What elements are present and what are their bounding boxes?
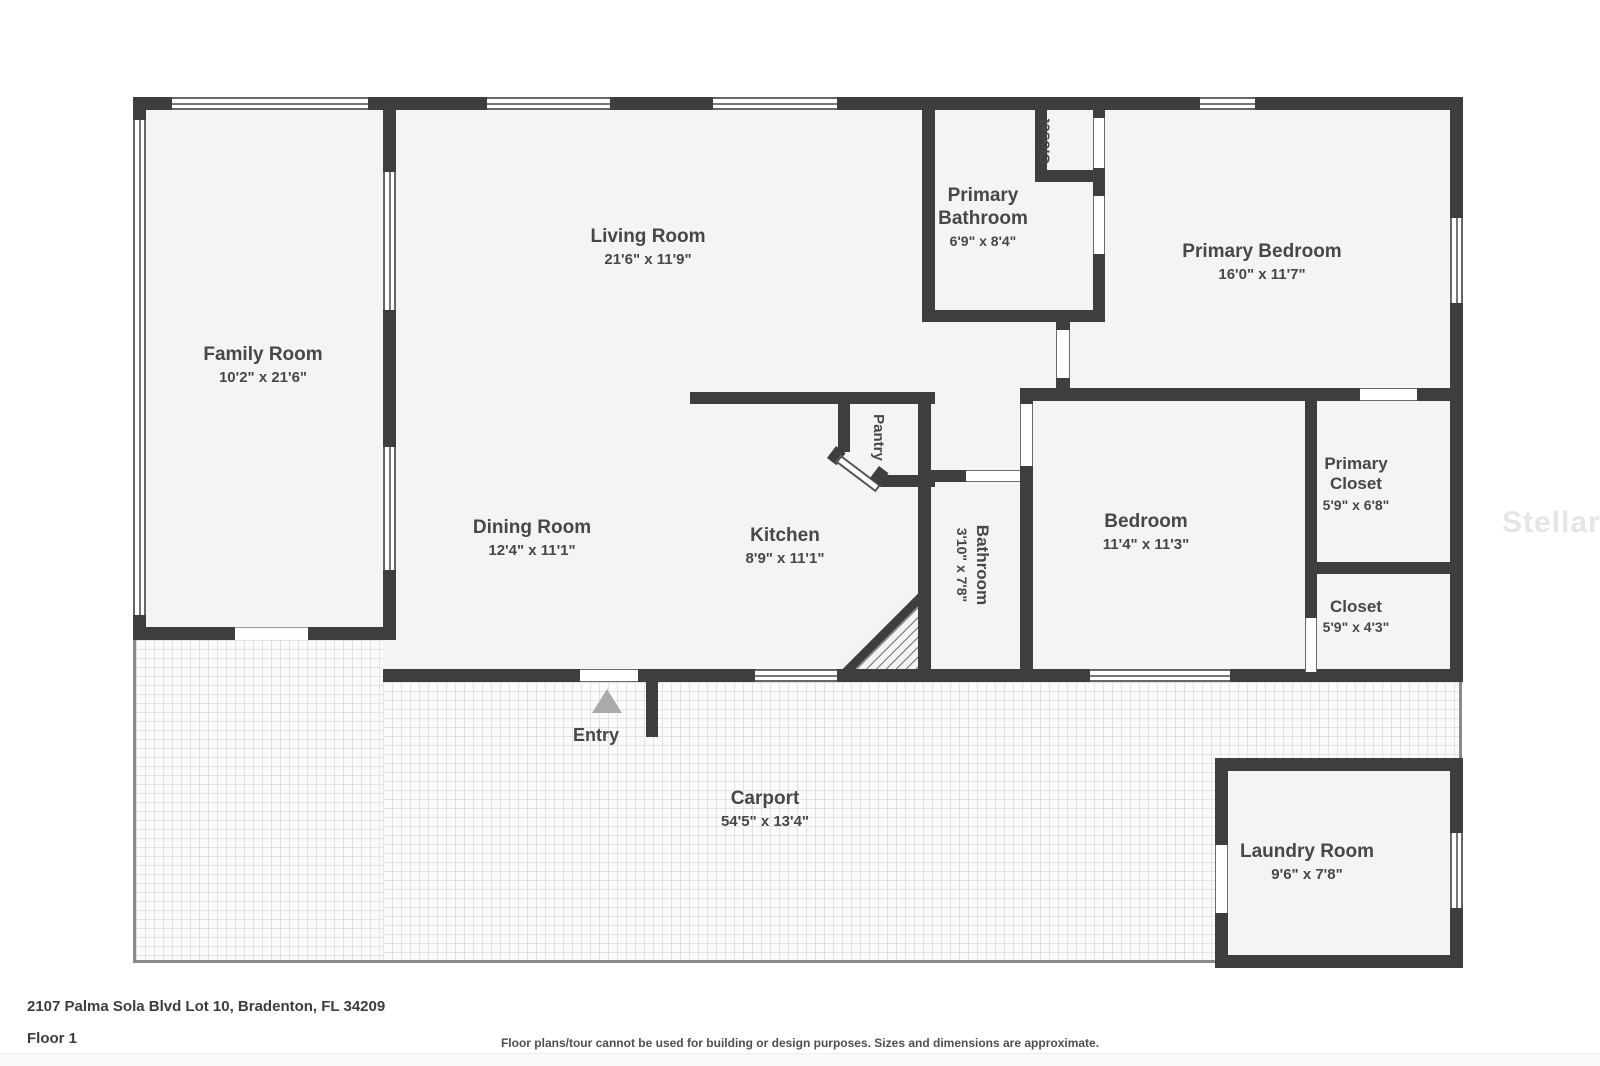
room-dims: 54'5" x 13'4"	[645, 813, 885, 832]
wall	[1215, 758, 1463, 771]
window	[1090, 669, 1230, 682]
wall	[690, 392, 935, 404]
room-label-closet-top: Closet	[1014, 112, 1076, 170]
room-dims: 6'9" x 8'4"	[923, 233, 1043, 251]
wall	[928, 470, 968, 482]
window	[383, 447, 396, 570]
room-name: Carport	[645, 788, 885, 811]
room-dims: 12'4" x 11'1"	[432, 542, 632, 561]
room-name: Family Room	[163, 344, 363, 367]
room-dims: 11'4" x 11'3"	[1046, 536, 1246, 555]
room-label-living-room: Living Room 21'6" x 11'9"	[548, 226, 748, 270]
room-name: Laundry Room	[1207, 841, 1407, 864]
door-opening	[1093, 196, 1105, 254]
room-name: Closet	[1296, 597, 1416, 617]
room-name: Pantry	[870, 414, 887, 461]
room-label-pantry: Pantry	[848, 406, 908, 468]
door-opening	[966, 470, 1020, 482]
footer-address: 2107 Palma Sola Blvd Lot 10, Bradenton, …	[27, 998, 385, 1015]
window	[755, 669, 837, 682]
room-dims: 10'2" x 21'6"	[163, 369, 363, 388]
floor-plan-page: Family Room 10'2" x 21'6" Living Room 21…	[0, 0, 1600, 1066]
room-dims: 16'0" x 11'7"	[1142, 266, 1382, 285]
room-name: Bedroom	[1046, 511, 1246, 534]
room-label-kitchen: Kitchen 8'9" x 11'1"	[685, 525, 885, 569]
window	[1200, 97, 1255, 110]
wall	[1056, 378, 1070, 388]
room-name: Bathroom	[972, 514, 992, 614]
room-name: Living Room	[548, 226, 748, 249]
room-name: Primary Bedroom	[1142, 241, 1382, 264]
room-label-family-room: Family Room 10'2" x 21'6"	[163, 344, 363, 388]
room-dims: 9'6" x 7'8"	[1207, 866, 1407, 885]
carport-edge	[133, 640, 136, 962]
watermark: StellarMLS	[1502, 506, 1600, 540]
wall	[1215, 955, 1463, 968]
room-dims: 8'9" x 11'1"	[685, 550, 885, 569]
door-opening	[1056, 330, 1070, 378]
door-opening	[580, 669, 638, 682]
window	[383, 172, 396, 310]
room-label-closet: Closet 5'9" x 4'3"	[1296, 597, 1416, 637]
window	[133, 120, 146, 615]
room-name: Closet	[1037, 118, 1054, 164]
wall	[1056, 322, 1070, 330]
room-name: Dining Room	[432, 517, 632, 540]
room-label-primary-bedroom: Primary Bedroom 16'0" x 11'7"	[1142, 241, 1382, 285]
entry-label: Entry	[536, 725, 656, 746]
door-opening	[1093, 118, 1105, 168]
wall	[922, 310, 1105, 322]
room-dims: 21'6" x 11'9"	[548, 251, 748, 270]
wall	[1305, 562, 1463, 574]
window	[1450, 833, 1463, 908]
room-dims: 5'9" x 6'8"	[1311, 497, 1401, 515]
entry-arrow-icon	[592, 689, 622, 713]
window	[487, 97, 610, 110]
footer-divider	[0, 1053, 1600, 1066]
room-label-bathroom: Bathroom 3'10" x 7'8"	[922, 487, 1022, 642]
room-name: Primary Bathroom	[923, 185, 1043, 231]
footer-disclaimer: Floor plans/tour cannot be used for buil…	[0, 1036, 1600, 1050]
room-label-laundry-room: Laundry Room 9'6" x 7'8"	[1207, 841, 1407, 885]
room-label-carport: Carport 54'5" x 13'4"	[645, 788, 885, 832]
window	[1450, 218, 1463, 303]
room-label-primary-closet: Primary Closet 5'9" x 6'8"	[1311, 454, 1401, 514]
room-dims: 5'9" x 4'3"	[1296, 619, 1416, 637]
door-opening	[1360, 388, 1417, 401]
room-dims: 3'10" x 7'8"	[952, 514, 970, 614]
room-name: Primary Closet	[1311, 454, 1401, 495]
room-name: Kitchen	[685, 525, 885, 548]
carport-area	[136, 640, 383, 962]
room-label-dining-room: Dining Room 12'4" x 11'1"	[432, 517, 632, 561]
room-label-primary-bathroom: Primary Bathroom 6'9" x 8'4"	[923, 185, 1043, 250]
window	[172, 97, 368, 110]
wall-opening	[235, 627, 308, 640]
room-label-bedroom: Bedroom 11'4" x 11'3"	[1046, 511, 1246, 555]
door-opening	[1020, 404, 1033, 466]
window	[713, 97, 837, 110]
